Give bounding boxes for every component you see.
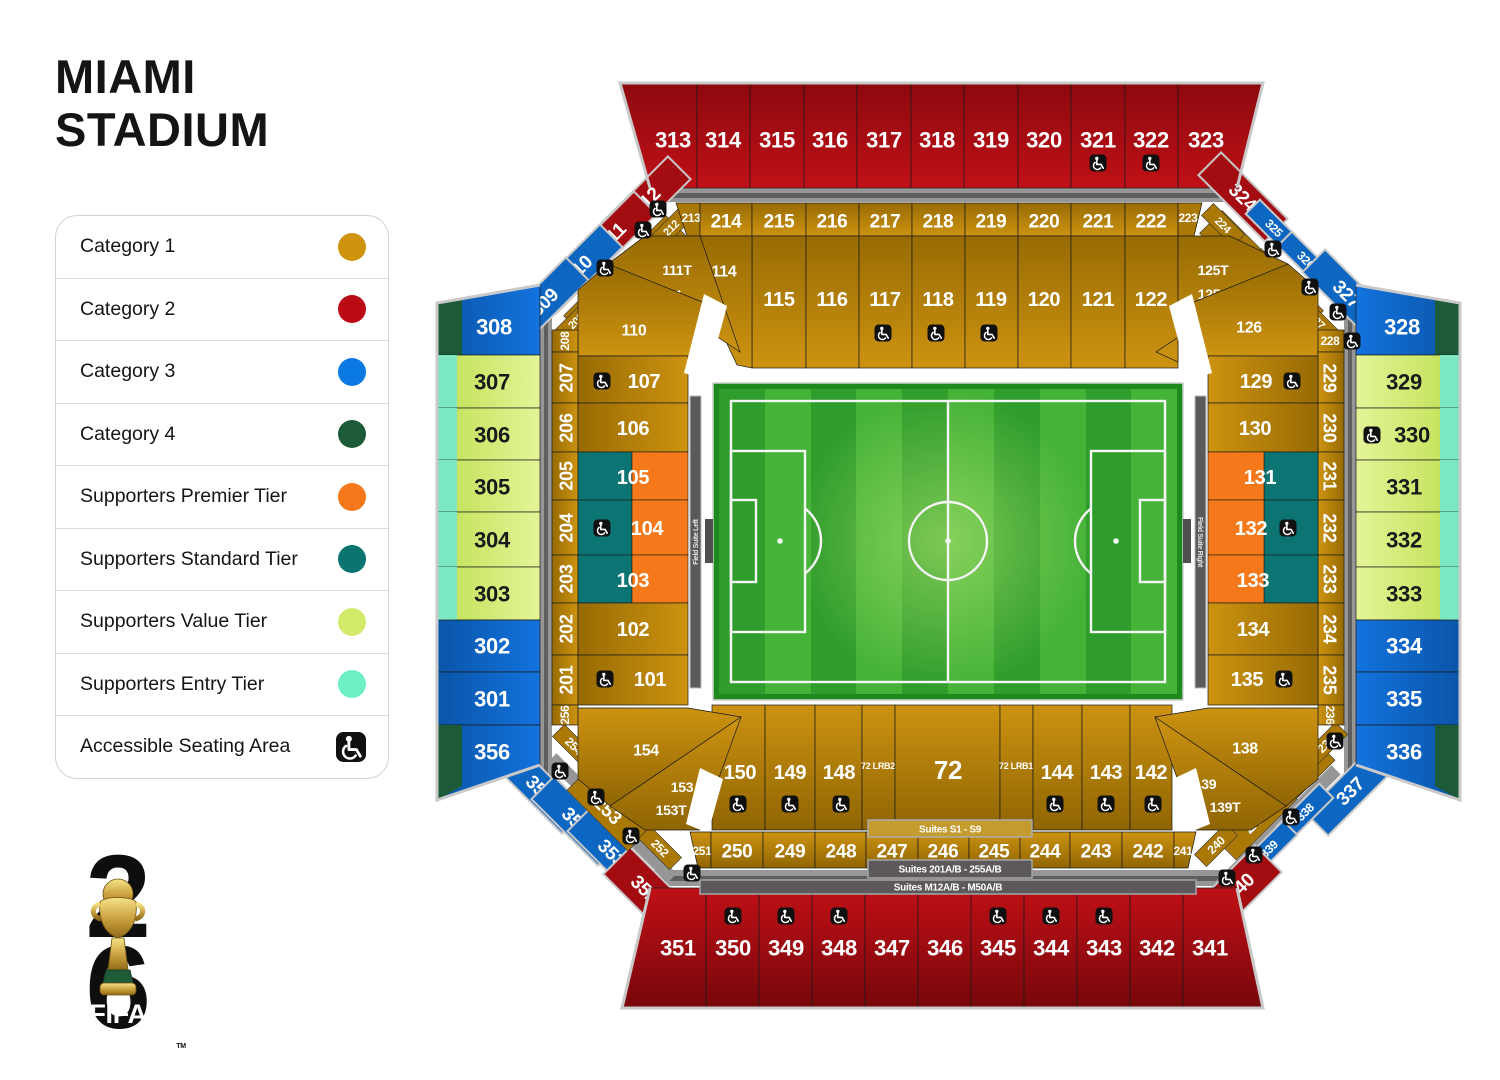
section-201-label: 201 [556,665,576,694]
section-101-label: 101 [634,669,667,691]
section-133-label: 133 [1237,570,1270,592]
accessible-seat-icon [875,325,892,342]
section-214-label: 214 [711,212,743,233]
section-130-label: 130 [1239,418,1272,440]
goal-left [705,519,713,563]
section-302-label: 302 [474,634,510,659]
section-244-label: 244 [1030,842,1062,863]
section-216-label: 216 [817,212,848,233]
accessible-seat-icon [1098,796,1115,813]
accessible-seat-icon [594,373,611,390]
accessible-seat-icon [833,796,850,813]
accessible-seat-icon [981,325,998,342]
section-202-label: 202 [556,614,576,643]
penalty-spot-left [777,538,783,544]
section-231-label: 231 [1320,461,1340,490]
section-119-label: 119 [975,289,1007,311]
accessible-seat-icon [597,260,614,277]
section-236-label: 236 [1323,705,1337,725]
section-323-label: 323 [1188,128,1224,153]
section-142-label: 142 [1135,762,1168,784]
accessible-seat-icon [1145,796,1162,813]
walkway-left-stripe [544,288,548,793]
accessible-seat-icon [552,763,569,780]
section-133-teal [1264,555,1318,603]
penalty-spot-right [1113,538,1119,544]
accessible-seat-icon [597,671,614,688]
section-220-label: 220 [1029,212,1060,233]
section-233-label: 233 [1320,564,1340,593]
center-spot [945,538,951,544]
fifa-26-logo: 2 6 FIFA TM [48,842,188,1052]
section-143-label: 143 [1090,762,1123,784]
section-122-label: 122 [1135,289,1168,311]
accessible-seat-icon [1330,304,1347,321]
accessible-seat-icon [1284,373,1301,390]
section-235-label: 235 [1320,665,1340,694]
section-333-label: 333 [1386,582,1422,607]
section-305-label: 305 [474,475,510,500]
section-138-label: 138 [1232,741,1258,758]
section-206-label: 206 [556,413,576,442]
section-218-label: 218 [923,212,954,233]
section-234-label: 234 [1320,614,1340,643]
section-332-mint-edge [1440,512,1460,567]
section-329-label: 329 [1386,370,1422,395]
section-330-label: 330 [1394,423,1430,448]
section-221-label: 221 [1083,212,1115,233]
section-307-mint-edge [437,355,457,408]
accessible-seat-icon [1043,908,1060,925]
accessible-seat-icon [1283,809,1300,826]
accessible-seat-icon [778,908,795,925]
section-356-label: 356 [474,740,510,765]
section-351-label: 351 [660,936,696,961]
section-307-label: 307 [474,370,510,395]
section-115-label: 115 [763,289,795,311]
section-314-label: 314 [705,128,742,153]
section-341-label: 341 [1192,936,1228,961]
section-306-label: 306 [474,423,510,448]
accessible-seat-icon [1246,847,1263,864]
section-332-label: 332 [1386,528,1422,553]
section-72-label: 72 [934,755,962,785]
section-229-label: 229 [1320,363,1340,392]
accessible-seat-icon [684,865,701,882]
section-72-lrb2-label: 72 LRB2 [861,761,895,771]
section-313-label: 313 [655,128,691,153]
section-205-label: 205 [556,461,576,490]
section-104-label: 104 [631,518,665,540]
section-103-label: 103 [617,570,650,592]
section-217-label: 217 [870,212,901,233]
accessible-seat-icon [1302,279,1319,296]
accessible-seat-icon [1096,908,1113,925]
section-232-label: 232 [1320,513,1340,542]
section-204-label: 204 [556,513,576,542]
section-131-label: 131 [1244,467,1277,489]
accessible-seat-icon [1344,333,1361,350]
section-72-lrb1-label: 72 LRB1 [999,761,1033,771]
accessible-seat-icon [730,796,747,813]
section-120-label: 120 [1028,289,1061,311]
section-347-label: 347 [874,936,910,961]
pitch-stripe [1131,389,1177,694]
logo-brand: FIFA [89,999,146,1029]
section-148-label: 148 [823,762,856,784]
section-330-mint-edge [1440,408,1460,460]
section-320-label: 320 [1026,128,1062,153]
section-328-label: 328 [1384,315,1420,340]
accessible-seat-icon [594,520,611,537]
section-331-mint-edge [1440,460,1460,512]
suites-s1-s9-label: Suites S1 - S9 [919,825,982,836]
section-111-label: 111T [662,262,692,278]
suites-m12-m50-label: Suites M12A/B - M50A/B [894,883,1003,894]
section-346-label: 346 [927,936,963,961]
section-215-label: 215 [764,212,796,233]
accessible-seat-icon [1143,155,1160,172]
stadium-map: 3133143153163173183193203213223233123113… [0,0,1500,1080]
section-348-label: 348 [821,936,857,961]
section-228-label: 228 [1320,334,1340,348]
section-305-mint-edge [437,460,457,512]
section-125-label: 125T [1198,262,1229,278]
section-303-mint-edge [437,567,457,620]
section-336-label: 336 [1386,740,1422,765]
section-243-label: 243 [1081,842,1112,863]
section-154-label: 154 [633,743,659,760]
section-316-label: 316 [812,128,848,153]
accessible-seat-icon [588,789,605,806]
section-350-label: 350 [715,936,751,961]
section-241-label: 241 [1173,844,1193,858]
section-317-label: 317 [866,128,902,153]
section-118-label: 118 [922,289,954,311]
accessible-seat-icon [1327,733,1344,750]
accessible-seat-icon [990,908,1007,925]
section-321-label: 321 [1080,128,1116,153]
section-110-label: 110 [622,323,647,340]
section-344-label: 344 [1033,936,1070,961]
section-248-label: 248 [826,842,857,863]
section-213-label: 213 [681,211,701,225]
accessible-seat-icon [623,828,640,845]
page: { "title": {"line1":"MIAMI","line2":"STA… [0,0,1500,1080]
section-114-label: 114 [712,264,737,281]
section-333-mint-edge [1440,567,1460,620]
accessible-seat-icon [650,201,667,218]
section-208-label: 208 [558,331,572,351]
section-117-label: 117 [869,289,901,311]
section-222-label: 222 [1136,212,1167,233]
section-116-label: 116 [816,289,848,311]
section-107-label: 107 [628,371,661,393]
goal-right [1183,519,1191,563]
section-349-label: 349 [768,936,804,961]
section-331-label: 331 [1386,475,1422,500]
section-203-label: 203 [556,564,576,593]
section-207-label: 207 [556,363,576,392]
section-250-label: 250 [722,842,753,863]
section-126-label: 126 [1236,320,1262,337]
section-219-label: 219 [976,212,1007,233]
walkway-top-stripe [650,193,1237,198]
section-132-label: 132 [1235,518,1268,540]
accessible-seat-icon [1090,155,1107,172]
accessible-seat-icon [782,796,799,813]
walkway-right-stripe [1348,288,1352,793]
section-102-label: 102 [617,619,650,641]
section-308-green-edge [437,299,462,355]
section-223-label: 223 [1178,211,1198,225]
section-319-label: 319 [973,128,1009,153]
section-251-label: 251 [692,844,712,858]
field-suite-left-label: Field Suite Left [693,518,700,564]
section-308-label: 308 [476,315,512,340]
section-329-mint-edge [1440,355,1460,408]
section-153-label: 153 [671,779,694,795]
suites-201-255-label: Suites 201A/B - 255A/B [899,865,1002,876]
section-149-label: 149 [774,762,807,784]
section-303-label: 303 [474,582,510,607]
section-306-mint-edge [437,408,457,460]
accessible-seat-icon [1280,520,1297,537]
accessible-seat-icon [1364,427,1381,444]
section-230-label: 230 [1320,413,1340,442]
section-242-label: 242 [1133,842,1164,863]
section-150-label: 150 [724,762,757,784]
section-345-label: 345 [980,936,1016,961]
section-121-label: 121 [1082,289,1115,311]
section-301-label: 301 [474,687,510,712]
section-249-label: 249 [775,842,806,863]
accessible-seat-icon [831,908,848,925]
section-134-label: 134 [1237,619,1271,641]
section-318-label: 318 [919,128,955,153]
accessible-seat-icon [928,325,945,342]
section-342-label: 342 [1139,936,1175,961]
section-315-label: 315 [759,128,795,153]
accessible-seat-icon [1219,870,1236,887]
decor-label: 139T [1210,799,1241,815]
section-343-label: 343 [1086,936,1122,961]
section-144-label: 144 [1041,762,1075,784]
section-334-label: 334 [1386,634,1423,659]
accessible-seat-icon [1047,796,1064,813]
section-129-label: 129 [1240,371,1273,393]
section-328-green-edge [1435,299,1460,355]
section-256-label: 256 [558,705,572,725]
accessible-seat-icon [1265,241,1282,258]
pitch-glow [794,391,1094,691]
accessible-seat-icon [1276,671,1293,688]
section-335-label: 335 [1386,687,1422,712]
section-304-label: 304 [474,528,511,553]
section-105-label: 105 [617,467,650,489]
section-304-mint-edge [437,512,457,567]
accessible-seat-icon [635,222,652,239]
section-135-label: 135 [1231,669,1264,691]
section-322-label: 322 [1133,128,1169,153]
section-106-label: 106 [617,418,650,440]
logo-trademark: TM [176,1043,186,1050]
decor-label: 153T [656,802,687,818]
field-suite-right-label: Field Suite Right [1196,517,1203,568]
accessible-seat-icon [725,908,742,925]
